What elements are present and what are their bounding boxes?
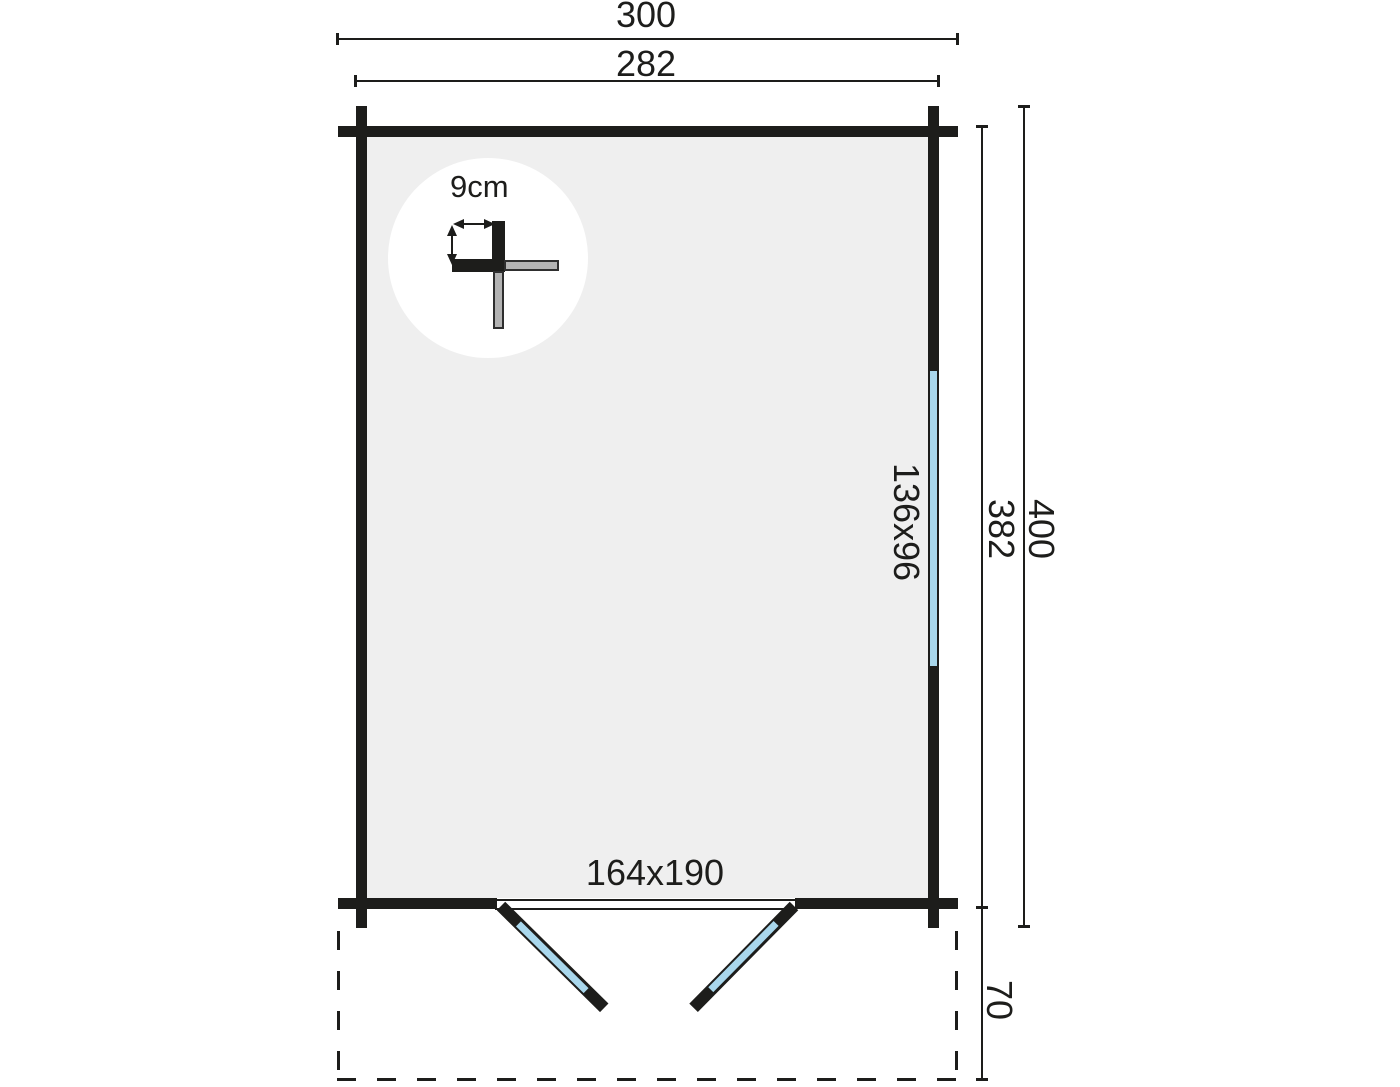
- dim-tick: [1018, 925, 1030, 928]
- window-glass: [928, 369, 939, 668]
- floor-plan-canvas: 9cm 136x96 164x190 300 282: [0, 0, 1400, 1087]
- dim-tick: [1018, 105, 1030, 108]
- wall-right-upper: [928, 106, 939, 371]
- dim-inner-depth-label: 382: [983, 499, 1019, 559]
- dim-tick: [336, 33, 339, 45]
- dim-tick: [937, 75, 940, 87]
- door-leaf-left-glass: [516, 921, 589, 993]
- dim-canopy-depth-label: 70: [981, 980, 1017, 1020]
- wall-left: [356, 106, 367, 928]
- canopy-outline-right: [955, 931, 958, 1083]
- dim-tick: [976, 1078, 988, 1081]
- dim-overall-width-label: 300: [616, 0, 676, 33]
- thickness-arrow-vertical-icon: [444, 225, 460, 265]
- dim-tick: [956, 33, 959, 45]
- door-leaf-right: [689, 902, 798, 1012]
- dim-overall-depth-label: 400: [1023, 499, 1059, 559]
- dim-overall-width-line: [338, 38, 958, 40]
- door-size-label: 164x190: [586, 855, 724, 891]
- dim-inner-width-label: 282: [616, 46, 676, 82]
- canopy-outline-left: [337, 931, 340, 1083]
- wall-thickness-label: 9cm: [450, 171, 509, 202]
- door-leaf-right-glass: [709, 921, 779, 992]
- detail-log-gray-horizontal: [504, 260, 559, 271]
- door-opening: [495, 899, 797, 910]
- wall-right-lower: [928, 666, 939, 928]
- dim-tick: [354, 75, 357, 87]
- dim-tick: [976, 125, 988, 128]
- wall-top: [338, 126, 958, 137]
- window-size-label: 136x96: [888, 463, 924, 581]
- canopy-outline-bottom: [337, 1078, 958, 1081]
- dim-inner-width-line: [356, 80, 939, 82]
- door-leaf-left: [497, 902, 609, 1012]
- detail-log-gray-vertical: [493, 271, 504, 329]
